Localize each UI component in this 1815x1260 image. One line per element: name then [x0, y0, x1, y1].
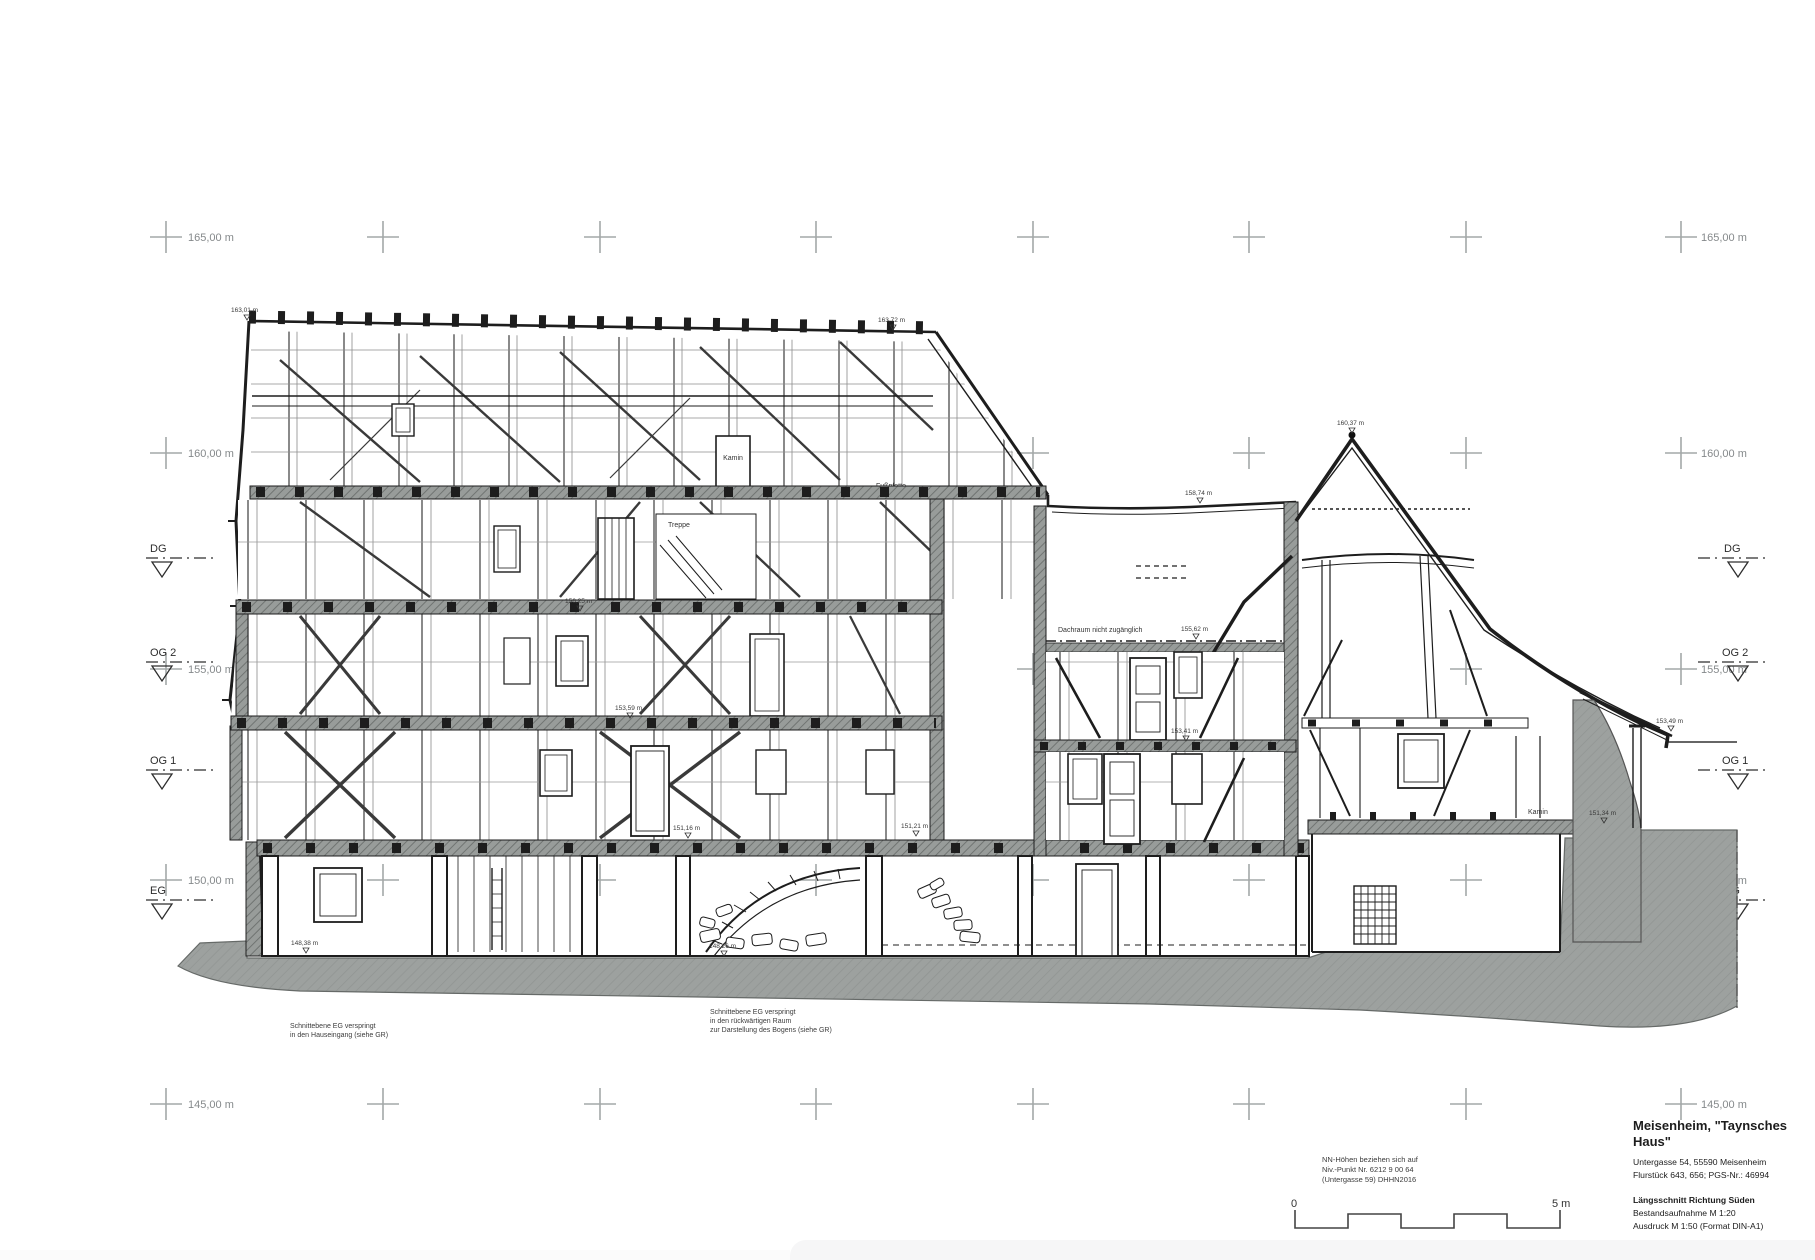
rear-eg-room — [1312, 834, 1560, 952]
middle-og-floor-band — [1034, 740, 1296, 752]
nn-reference-note: NN-Höhen beziehen sich auf Niv.-Punkt Nr… — [1322, 1155, 1418, 1185]
svg-text:151,34 m: 151,34 m — [1589, 810, 1616, 817]
svg-text:148,26 m: 148,26 m — [709, 943, 736, 950]
dachraum-label: Dachraum nicht zugänglich — [1058, 627, 1143, 634]
svg-text:153,49 m: 153,49 m — [1656, 718, 1683, 725]
svg-text:158,74 m: 158,74 m — [1185, 490, 1212, 497]
level-markers-left: DG OG 2 OG 1 EG — [146, 543, 218, 919]
rear-building: Kamin — [1296, 432, 1672, 953]
dg1-plank-door — [598, 518, 634, 599]
project-title: Meisenheim, "Taynsches Haus" — [1633, 1118, 1815, 1150]
eg-window — [314, 868, 362, 922]
level-label: OG 2 — [1722, 647, 1748, 659]
title-block: Meisenheim, "Taynsches Haus" Untergasse … — [1633, 1118, 1815, 1260]
svg-text:156,25 m: 156,25 m — [565, 598, 592, 605]
level-label: OG 2 — [150, 647, 176, 659]
middle-eg-window-2 — [1172, 754, 1202, 804]
level-label: EG — [150, 885, 166, 897]
grid-label: 165,00 m — [188, 232, 234, 244]
grid-label: 165,00 m — [1701, 232, 1747, 244]
eg-door — [1076, 864, 1118, 956]
project-address: Untergasse 54, 55590 Meisenheim — [1633, 1156, 1815, 1169]
rear-og-frame — [1310, 728, 1470, 818]
eg-plank-partition — [458, 856, 570, 952]
retaining-wall — [1573, 700, 1641, 942]
og1-window-2 — [756, 750, 786, 794]
rear-floor-band — [1308, 820, 1578, 834]
front-house: Kamin Treppe Fußpfette — [222, 317, 1309, 956]
print-scale: Ausdruck M 1:50 (Format DIN-A1) — [1633, 1220, 1815, 1233]
svg-text:151,16 m: 151,16 m — [673, 825, 700, 832]
annotation-line: in den rückwärtigen Raum — [710, 1017, 832, 1026]
level-marker-og1-left: OG 1 — [146, 755, 218, 789]
level-label: OG 1 — [150, 755, 176, 767]
middle-og-door — [1130, 658, 1166, 740]
level-label: DG — [1724, 543, 1741, 555]
drawing-sheet: 165,00 m 160,00 m 155,00 m 150,00 m 145,… — [0, 0, 1815, 1260]
annotation-line: Schnittebene EG verspringt — [290, 1022, 388, 1031]
grid-label: 155,00 m — [188, 664, 234, 676]
kamin-attic-label: Kamin — [723, 455, 743, 462]
annotation-center: Schnittebene EG verspringt in den rückwä… — [710, 1008, 832, 1035]
arch-fragment — [917, 877, 981, 943]
attic-chimney — [716, 436, 750, 488]
grid-label: 145,00 m — [1701, 1099, 1747, 1111]
level-marker-dg-left: DG — [146, 543, 218, 577]
window-rounded-corner — [790, 1240, 1815, 1260]
grid-label: 160,00 m — [1701, 448, 1747, 460]
scale-five-m: 5 m — [1552, 1198, 1570, 1210]
grid-label: 145,00 m — [188, 1099, 234, 1111]
middle-left-wall — [1034, 506, 1046, 856]
scale-zero: 0 — [1291, 1198, 1297, 1210]
eg-storey — [262, 856, 1309, 956]
svg-text:148,38 m: 148,38 m — [291, 940, 318, 947]
annotation-line: Niv.-Punkt Nr. 6212 9 00 64 — [1322, 1165, 1418, 1175]
svg-text:153,59 m: 153,59 m — [615, 705, 642, 712]
drawing-title: Längsschnitt Richtung Süden — [1633, 1194, 1815, 1207]
dg1-frame-field — [238, 500, 1042, 599]
rear-wall-poche — [930, 497, 944, 840]
annotation-line: Schnittebene EG verspringt — [710, 1008, 832, 1017]
treppe-label: Treppe — [668, 522, 690, 529]
rear-gable-frame — [1304, 556, 1487, 718]
svg-text:155,62 m: 155,62 m — [1181, 626, 1208, 633]
grid-label: 150,00 m — [188, 875, 234, 887]
grid-label: 160,00 m — [188, 448, 234, 460]
middle-og-window — [1174, 652, 1202, 698]
svg-text:151,21 m: 151,21 m — [901, 823, 928, 830]
og1-window-3 — [866, 750, 894, 794]
og1-frame-field — [231, 730, 938, 840]
annotation-line: (Untergasse 59) DHHN2016 — [1322, 1175, 1418, 1185]
scale-bar-shape — [1295, 1210, 1560, 1228]
og1-door — [631, 746, 669, 836]
svg-text:160,37 m: 160,37 m — [1337, 420, 1364, 427]
window-bottom-strip — [0, 1250, 790, 1260]
project-parcel: Flurstück 643, 656; PGS-Nr.: 46994 — [1633, 1169, 1815, 1182]
rear-chimney-shaft — [1516, 736, 1540, 818]
attic-window — [392, 404, 414, 436]
kamin-rear-label: Kamin — [1528, 809, 1548, 816]
og2-door — [750, 634, 784, 716]
svg-text:163,01 m: 163,01 m — [231, 307, 258, 314]
level-marker-dg-right: DG — [1698, 543, 1768, 577]
og2-window-2 — [504, 638, 530, 684]
cellar-grate — [1354, 886, 1396, 944]
scale-bar: 0 5 m — [1291, 1198, 1570, 1228]
middle-building: Dachraum nicht zugänglich — [1034, 495, 1298, 856]
level-label: OG 1 — [1722, 755, 1748, 767]
annotation-line: NN-Höhen beziehen sich auf — [1322, 1155, 1418, 1165]
annotation-line: in den Hauseingang (siehe GR) — [290, 1031, 388, 1040]
rear-og-rail — [1302, 718, 1528, 728]
svg-text:163,72 m: 163,72 m — [878, 317, 905, 324]
level-marker-og1-right: OG 1 — [1698, 755, 1768, 789]
level-label: DG — [150, 543, 167, 555]
survey-scale: Bestandsaufnahme M 1:20 — [1633, 1207, 1815, 1220]
dachraum-floor-band — [1046, 643, 1284, 652]
middle-eg-door — [1104, 754, 1140, 844]
svg-text:153,41 m: 153,41 m — [1171, 728, 1198, 735]
level-marker-eg-left: EG — [146, 885, 218, 919]
middle-roofline — [1048, 495, 1296, 508]
section-drawing-svg: 165,00 m 160,00 m 155,00 m 150,00 m 145,… — [0, 0, 1815, 1260]
attic-rafter-field — [251, 331, 1041, 492]
rear-og-window — [1398, 734, 1444, 788]
annotation-left: Schnittebene EG verspringt in den Hausei… — [290, 1022, 388, 1040]
annotation-line: zur Darstellung des Bogens (siehe GR) — [710, 1026, 832, 1035]
